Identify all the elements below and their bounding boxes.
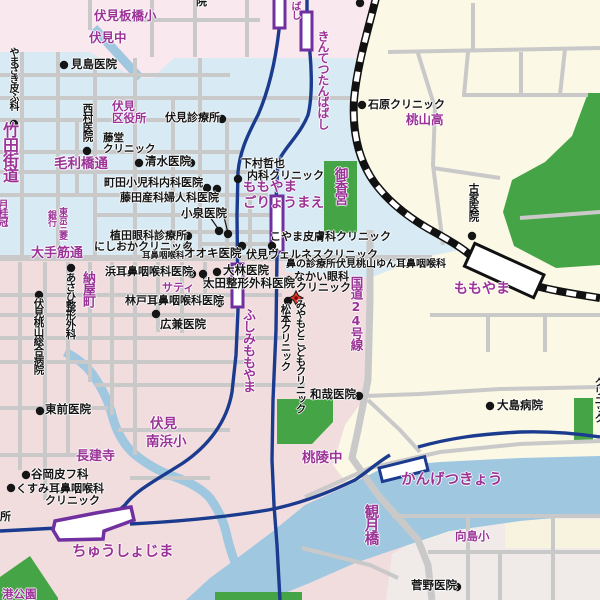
toryo-junior-high-label: 桃陵中 <box>302 452 343 466</box>
saty-label: サティ <box>162 282 194 293</box>
ota-seikei-clinic-label: 太田整形外科医院 <box>203 278 295 290</box>
koyama-derma-clinic-label: こやま皮膚科クリニック <box>270 231 391 242</box>
kangetsukyo-station-label: かんげつきょう <box>401 473 503 488</box>
ohki-ent-line1-label: 耳鼻咽喉科 <box>142 252 185 261</box>
furuya-clinic-label: 古家医院 <box>468 183 479 221</box>
minato-park-label: 港公園 <box>2 589 37 600</box>
tozen-clinic-label: 東前医院 <box>45 404 91 416</box>
shimomura-clinic-line1-dot <box>234 175 242 183</box>
fushimi-junior-high-label: 伏見中 <box>89 32 127 45</box>
fushimi-ward-office-line2-label: 区役所 <box>112 113 147 125</box>
fushimi-minamihama-elementary-line1-label: 伏見 <box>150 418 177 432</box>
furuya-clinic-dot <box>468 232 476 240</box>
kusumi-ent-line1-label: くすみ耳鼻咽喉科 <box>16 483 104 494</box>
shimizu-clinic-dot <box>135 159 143 167</box>
todo-clinic-line1-label: 藤堂 <box>103 133 124 144</box>
oshima-hospital-label: 大島病院 <box>497 400 543 412</box>
wakaya-clinic-label: 和哉医院 <box>310 389 356 401</box>
obayashi-clinic-label: 大林医院 <box>223 265 269 277</box>
shimomura-clinic-line2-label: 内科クリニック <box>247 170 324 181</box>
riverbank-green-strip <box>215 592 302 600</box>
hama-ent-clinic-label: 浜耳鼻咽喉科医院 <box>105 266 193 277</box>
momoyama-goryomae-station-line1-label: ももやま <box>243 181 297 195</box>
obayashi-clinic-dot <box>213 268 221 276</box>
jr-momoyama-station-label: ももやま <box>454 282 510 296</box>
hirokane-clinic-dot <box>152 310 160 318</box>
shimizu-clinic-label: 清水医院 <box>145 156 191 168</box>
tanioka-hifuka-label: 谷岡皮フ科 <box>31 469 89 481</box>
koizumi-clinic-label: 小泉医院 <box>181 208 227 220</box>
ishihara-clinic-dot <box>358 101 366 109</box>
hana-no-shinryojo-yun-ent-label: 鼻の診療所伏見桃山ゆん耳鼻咽喉科 <box>286 260 446 270</box>
machida-clinic-label: 町田小児科内科医院 <box>104 177 203 188</box>
oshima-hospital-dot <box>486 402 494 410</box>
gokonomiya-shrine-label: 御香宮 <box>332 167 346 205</box>
tanioka-hifuka-dot <box>22 471 30 479</box>
fushimi-momoyama-sogo-hospital-label: 伏見桃山総合病院 <box>33 298 44 374</box>
kintetsu-tambabashi-station-symbol <box>301 12 312 50</box>
momoyama-goryomae-station-line2-label: ごりょうまえ <box>243 197 324 211</box>
ishihara-clinic-label: 石原クリニック <box>368 99 445 110</box>
wakaya-clinic-dot <box>355 392 363 400</box>
mukaijima-elementary-label: 向島小 <box>455 531 490 543</box>
kusumi-ent-line2-label: クリニック <box>45 495 100 506</box>
shimomura-clinic-line1-label: 下村哲也 <box>241 158 285 169</box>
nishimura-clinic-label: 西村医院 <box>82 103 93 141</box>
hayashido-ent-clinic-label: 林戸耳鼻咽喉科医院 <box>125 295 224 306</box>
fushimi-clinic-label: 伏見診療所 <box>165 112 220 123</box>
miyamoto-kids-clinic-label: みやもとこどもクリニック <box>295 299 306 413</box>
map-canvas[interactable]: 伏見板橋小伏見中きんてつたんばばしばし桃山高竹田街道月桂冠毛利橋通東京三菱銀行大… <box>0 0 600 600</box>
keihan-tambabashi-station-symbol <box>274 0 285 28</box>
tozen-clinic-dot <box>36 407 44 415</box>
shinryojo-partial-label: 所 <box>0 511 11 522</box>
chokenji-temple-label: 長建寺 <box>76 450 115 463</box>
hirokane-clinic-label: 広兼医院 <box>160 319 206 331</box>
asahi-seikei-clinic-label: あさひ整形外科 <box>65 272 76 339</box>
tambabashi-station-partial-label: ばし <box>289 1 299 19</box>
chushojima-station-label: ちゅうしょじま <box>72 545 174 560</box>
tokyo-mitsubishi-bank-line1-label: 東京三菱 <box>57 207 66 239</box>
fushimi-itabashi-elementary-label: 伏見板橋小 <box>94 10 157 23</box>
mishima-clinic-label: 見島医院 <box>71 59 117 71</box>
otesuji-dori-label: 大手筋通 <box>31 247 83 260</box>
sugano-clinic-label: 菅野医院 <box>411 580 457 592</box>
mourihashi-dori-label: 毛利橋通 <box>54 158 108 172</box>
matsumoto-clinic-label: 松本クリニック <box>280 304 291 371</box>
clinic-dot <box>224 230 232 238</box>
yamazaki-hifuka-label: やまざき皮ふ科 <box>7 47 17 110</box>
gekkeikan-label: 月桂冠 <box>0 199 6 226</box>
fushimi-momoyama-station-label: ふしみももやま <box>241 308 254 392</box>
takeda-kaido-label: 竹田街道 <box>1 122 17 182</box>
nayamachi-label: 納屋町 <box>81 271 94 307</box>
kusumi-ent-line1-dot <box>7 484 15 492</box>
ohki-ent-line2-label: オオキ医院 <box>184 248 242 260</box>
fujita-clinic-label: 藤田産科婦人科医院 <box>120 192 219 203</box>
tokyo-mitsubishi-bank-line2-label: 銀行 <box>46 210 55 226</box>
asahi-seikei-clinic-dot <box>67 264 75 272</box>
momoyama-high-school-label: 桃山高 <box>406 114 444 127</box>
nishimura-clinic-dot <box>83 147 91 155</box>
clinic-partial-top-label: 院 <box>196 0 207 7</box>
kangetsu-bridge-label: 観月橋 <box>363 504 378 545</box>
nakai-eye-line2-label: クリニック <box>296 282 351 293</box>
kintetsu-tambabashi-station-label: きんてつたんばばし <box>317 30 329 129</box>
koizumi-clinic-dot <box>215 227 223 235</box>
fushimi-minamihama-elementary-line2-label: 南浜小 <box>146 436 187 450</box>
todo-clinic-line2-label: クリニック <box>103 144 156 155</box>
mishima-clinic-dot <box>60 61 68 69</box>
clinic-partial-right-label: クリニック <box>592 377 600 422</box>
